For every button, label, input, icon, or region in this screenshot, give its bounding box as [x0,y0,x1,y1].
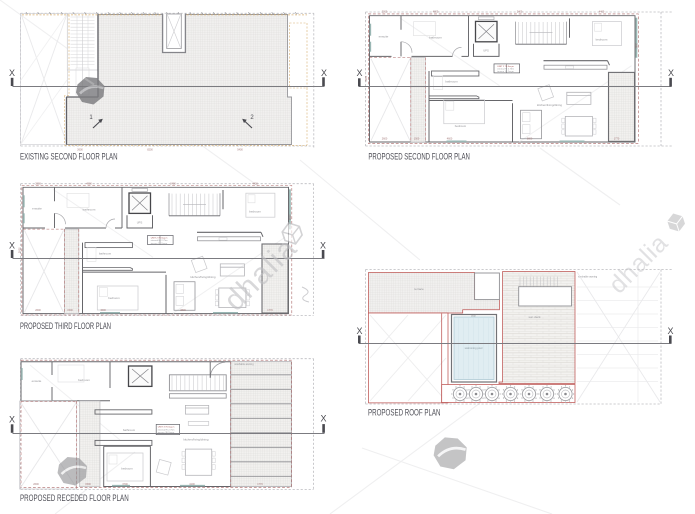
svg-text:X: X [9,68,15,78]
svg-text:X: X [9,415,15,425]
svg-text:PROPOSED RECEDED FLOOR PLAN: PROPOSED RECEDED FLOOR PLAN [20,493,129,504]
svg-text:bedroom: bedroom [108,296,120,300]
svg-text:4400: 4400 [252,182,258,185]
svg-text:4600: 4600 [447,137,453,140]
svg-text:kitchen/living/dining: kitchen/living/dining [183,438,208,442]
svg-text:2600: 2600 [35,309,41,312]
svg-text:ensuite: ensuite [32,379,42,383]
svg-text:internal Ht 2.75m: internal Ht 2.75m [151,239,168,242]
svg-text:bathroom: bathroom [445,80,458,84]
svg-text:2000: 2000 [35,182,41,185]
svg-text:1500: 1500 [67,309,73,312]
svg-text:X: X [320,414,326,424]
svg-text:3800: 3800 [180,309,186,312]
svg-text:2400: 2400 [170,182,176,185]
svg-text:bedroom: bedroom [455,124,467,128]
svg-text:8200: 8200 [147,148,153,151]
svg-text:bedroom: bedroom [249,209,261,213]
svg-text:X: X [667,326,673,336]
svg-text:2600: 2600 [33,483,39,486]
svg-text:sun deck: sun deck [528,315,541,319]
svg-text:ensuite: ensuite [32,206,42,210]
svg-text:internal Ht 2.75m: internal Ht 2.75m [158,428,175,431]
svg-text:terrace 10.2sq.m: terrace 10.2sq.m [497,70,514,73]
svg-text:2000: 2000 [382,11,388,14]
svg-text:3700: 3700 [122,483,128,486]
svg-text:pool: pool [471,314,476,317]
svg-text:1770: 1770 [257,483,263,486]
svg-text:2600: 2600 [382,137,388,140]
svg-text:terrace 10.2sq.m: terrace 10.2sq.m [151,242,168,245]
svg-text:bathroom: bathroom [83,207,96,211]
svg-text:2400: 2400 [517,11,523,14]
svg-text:bedroom: bedroom [121,467,133,471]
svg-text:4800: 4800 [86,182,92,185]
svg-text:swimming pool: swimming pool [465,346,483,350]
svg-text:X: X [356,68,362,78]
svg-text:1770: 1770 [267,309,273,312]
svg-text:bathroom: bathroom [99,251,112,255]
svg-text:3000: 3000 [19,247,22,253]
svg-text:internal Ht 2.75m: internal Ht 2.75m [497,68,514,71]
svg-text:kitchen/living/dining: kitchen/living/dining [537,103,562,107]
svg-text:3600: 3600 [635,42,638,48]
svg-text:kitchen/living/dining: kitchen/living/dining [190,275,215,279]
svg-text:ensuite: ensuite [379,35,389,39]
svg-text:UNIT 3 76.5sq.m: UNIT 3 76.5sq.m [158,427,175,429]
svg-text:PROPOSED SECOND FLOOR PLAN: PROPOSED SECOND FLOOR PLAN [368,152,470,163]
svg-text:3000: 3000 [365,75,368,81]
svg-text:washable awning: washable awning [234,363,254,366]
svg-text:X: X [9,241,15,251]
svg-text:1770: 1770 [614,137,620,140]
svg-text:1500: 1500 [85,483,91,486]
svg-text:EXISTING SECOND FLOOR PLAN: EXISTING SECOND FLOOR PLAN [20,152,118,163]
svg-text:4800: 4800 [433,11,439,14]
svg-text:5400: 5400 [237,148,243,151]
svg-text:X: X [321,68,327,78]
svg-text:3800: 3800 [527,137,533,140]
svg-text:1500: 1500 [414,137,420,140]
svg-text:X: X [320,241,326,251]
svg-text:3600: 3600 [289,214,292,220]
svg-text:4400: 4400 [599,11,605,14]
svg-text:PROPOSED THIRD FLOOR PLAN: PROPOSED THIRD FLOOR PLAN [20,321,111,332]
svg-text:bedroom: bedroom [596,38,608,42]
svg-text:UPS: UPS [483,49,489,53]
svg-text:X: X [356,326,362,336]
svg-text:X: X [668,68,674,78]
svg-text:4100: 4100 [189,483,195,486]
svg-text:4600: 4600 [100,309,106,312]
svg-text:PROPOSED ROOF PLAN: PROPOSED ROOF PLAN [368,407,441,418]
svg-text:bathroom: bathroom [123,428,136,432]
svg-text:terrace: terrace [414,287,424,291]
svg-text:UPS: UPS [137,220,143,224]
svg-text:bathroom: bathroom [429,36,442,40]
